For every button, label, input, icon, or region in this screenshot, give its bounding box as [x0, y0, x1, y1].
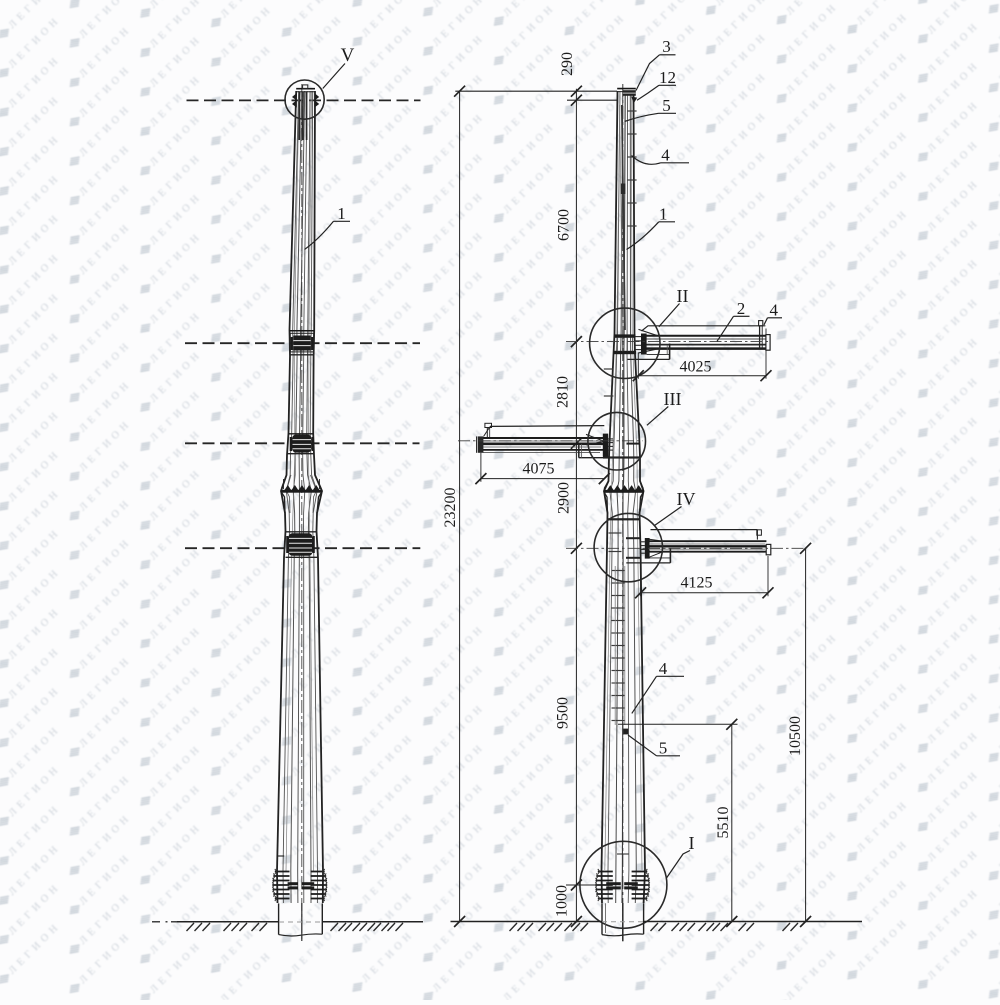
svg-text:V: V: [341, 45, 355, 66]
svg-text:4075: 4075: [523, 461, 555, 478]
svg-text:2810: 2810: [555, 376, 572, 408]
svg-text:4025: 4025: [680, 359, 712, 376]
svg-text:4: 4: [661, 146, 670, 165]
svg-text:6700: 6700: [556, 209, 573, 241]
svg-text:9500: 9500: [555, 697, 572, 729]
svg-text:3: 3: [662, 37, 671, 56]
svg-text:1: 1: [337, 204, 346, 223]
svg-text:10500: 10500: [787, 716, 804, 756]
svg-text:23200: 23200: [442, 488, 459, 528]
svg-text:5: 5: [659, 739, 668, 758]
svg-text:2900: 2900: [556, 482, 573, 514]
svg-text:II: II: [677, 286, 689, 306]
svg-text:12: 12: [659, 68, 676, 87]
svg-text:1: 1: [659, 205, 668, 224]
svg-text:290: 290: [559, 52, 576, 76]
svg-text:5: 5: [662, 96, 671, 115]
svg-text:1000: 1000: [554, 885, 571, 917]
svg-text:I: I: [689, 833, 695, 853]
svg-text:4125: 4125: [681, 575, 713, 592]
svg-text:4: 4: [659, 659, 668, 678]
svg-text:4: 4: [770, 301, 779, 320]
svg-text:IV: IV: [677, 489, 696, 509]
svg-text:2: 2: [737, 299, 746, 318]
svg-text:5510: 5510: [715, 807, 732, 839]
svg-text:III: III: [664, 389, 682, 409]
